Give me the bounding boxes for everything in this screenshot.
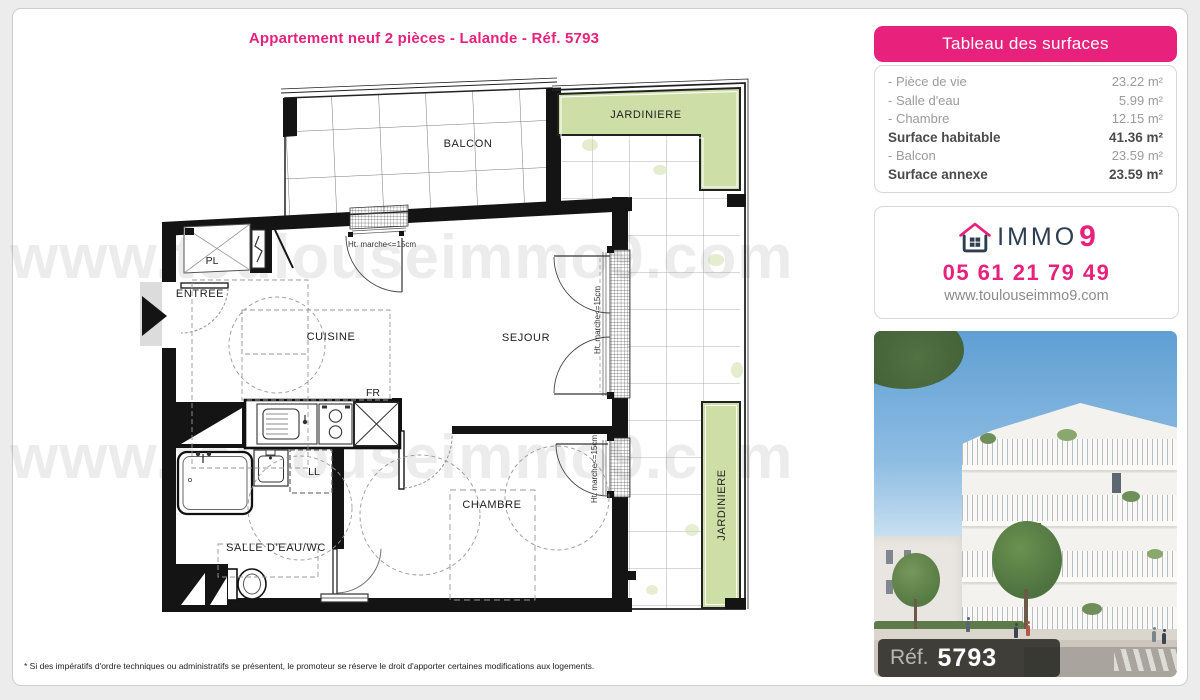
shower [178,452,252,514]
table-row-total: Surface habitable 41.36 m² [888,129,1163,148]
surfaces-header: Tableau des surfaces [874,26,1177,62]
room-label-ll: LL [308,466,320,478]
surfaces-body: - Pièce de vie 23.22 m² - Salle d'eau 5.… [874,65,1177,193]
toilet [227,569,237,600]
kitchen-counter: FR [176,387,400,448]
row-label: - Chambre [888,110,949,129]
tree-canopy [874,331,964,389]
tree [992,521,1062,599]
reference-badge: Réf. 5793 [878,639,1060,677]
floor-plan: BALCON JARDINIERE JARDINIERE [0,50,800,650]
row-label: Surface habitable [888,129,1001,148]
legal-footnote: * Si des impératifs d'ordre techniques o… [24,661,594,671]
room-label-chambre: CHAMBRE [462,499,521,511]
reference-label: Réf. [890,646,929,670]
table-row: - Balcon 23.59 m² [888,147,1163,166]
agency-logo: IMMO 9 [875,220,1178,254]
room-label-jardiniere-right: JARDINIERE [716,469,728,540]
agency-website: www.toulouseimmo9.com [875,288,1178,304]
room-label-balcon: BALCON [444,138,493,150]
room-label-entree: ENTREE [176,288,224,300]
room-label-jardiniere-top: JARDINIERE [610,109,681,121]
room-label-pl: PL [206,255,219,267]
page-title: Appartement neuf 2 pièces - Lalande - Ré… [0,30,848,47]
row-value: 23.59 m² [1112,147,1163,166]
step-note-sejour: Ht. marche<=15cm [593,286,602,354]
row-value: 5.99 m² [1119,92,1163,111]
reference-number: 5793 [938,644,998,673]
table-row: - Pièce de vie 23.22 m² [888,73,1163,92]
table-row-total: Surface annexe 23.59 m² [888,166,1163,185]
table-row: - Salle d'eau 5.99 m² [888,92,1163,111]
closet-pl: PL [184,224,265,273]
crosswalk [1114,649,1177,671]
row-value: 23.59 m² [1109,166,1163,185]
row-label: - Balcon [888,147,936,166]
room-label-cuisine: CUISINE [307,331,356,343]
row-label: Surface annexe [888,166,988,185]
row-value: 12.15 m² [1112,110,1163,129]
brand-text: IMMO [997,223,1077,252]
agency-card: IMMO 9 05 61 21 79 49 www.toulouseimmo9.… [874,206,1179,319]
room-label-sejour: SEJOUR [502,332,550,344]
table-row: - Chambre 12.15 m² [888,110,1163,129]
row-label: - Pièce de vie [888,73,967,92]
step-note-chambre: Ht. marche<=15cm [590,435,599,503]
room-label-fr: FR [366,387,380,399]
agency-phone: 05 61 21 79 49 [875,260,1178,286]
room-label-salle-deau: SALLE D'EAU/WC [226,542,326,554]
row-value: 41.36 m² [1109,129,1163,148]
row-value: 23.22 m² [1112,73,1163,92]
house-icon [957,221,993,254]
row-label: - Salle d'eau [888,92,960,111]
balcony: BALCON [281,78,561,218]
brand-number: 9 [1079,220,1096,254]
step-note-kitchen: Ht. marche<=15cm [348,240,416,249]
surfaces-table: Tableau des surfaces - Pièce de vie 23.2… [874,26,1177,193]
building-photo: Réf. 5793 [874,331,1177,677]
